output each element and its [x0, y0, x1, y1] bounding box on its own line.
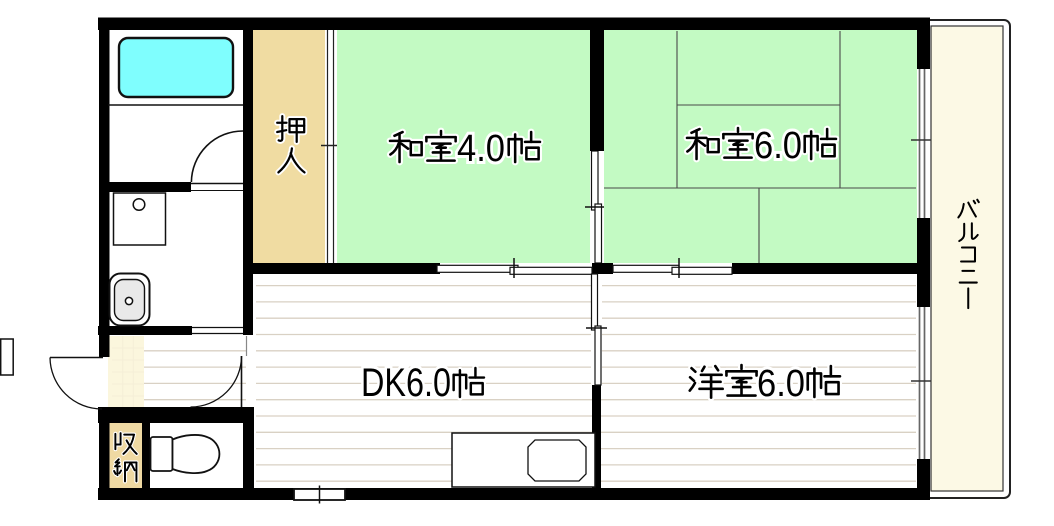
svg-text:6.0: 6.0	[754, 125, 802, 167]
svg-text:6.0: 6.0	[757, 363, 805, 405]
svg-text:4.0: 4.0	[457, 128, 505, 170]
svg-text:DK6.0: DK6.0	[361, 361, 451, 405]
